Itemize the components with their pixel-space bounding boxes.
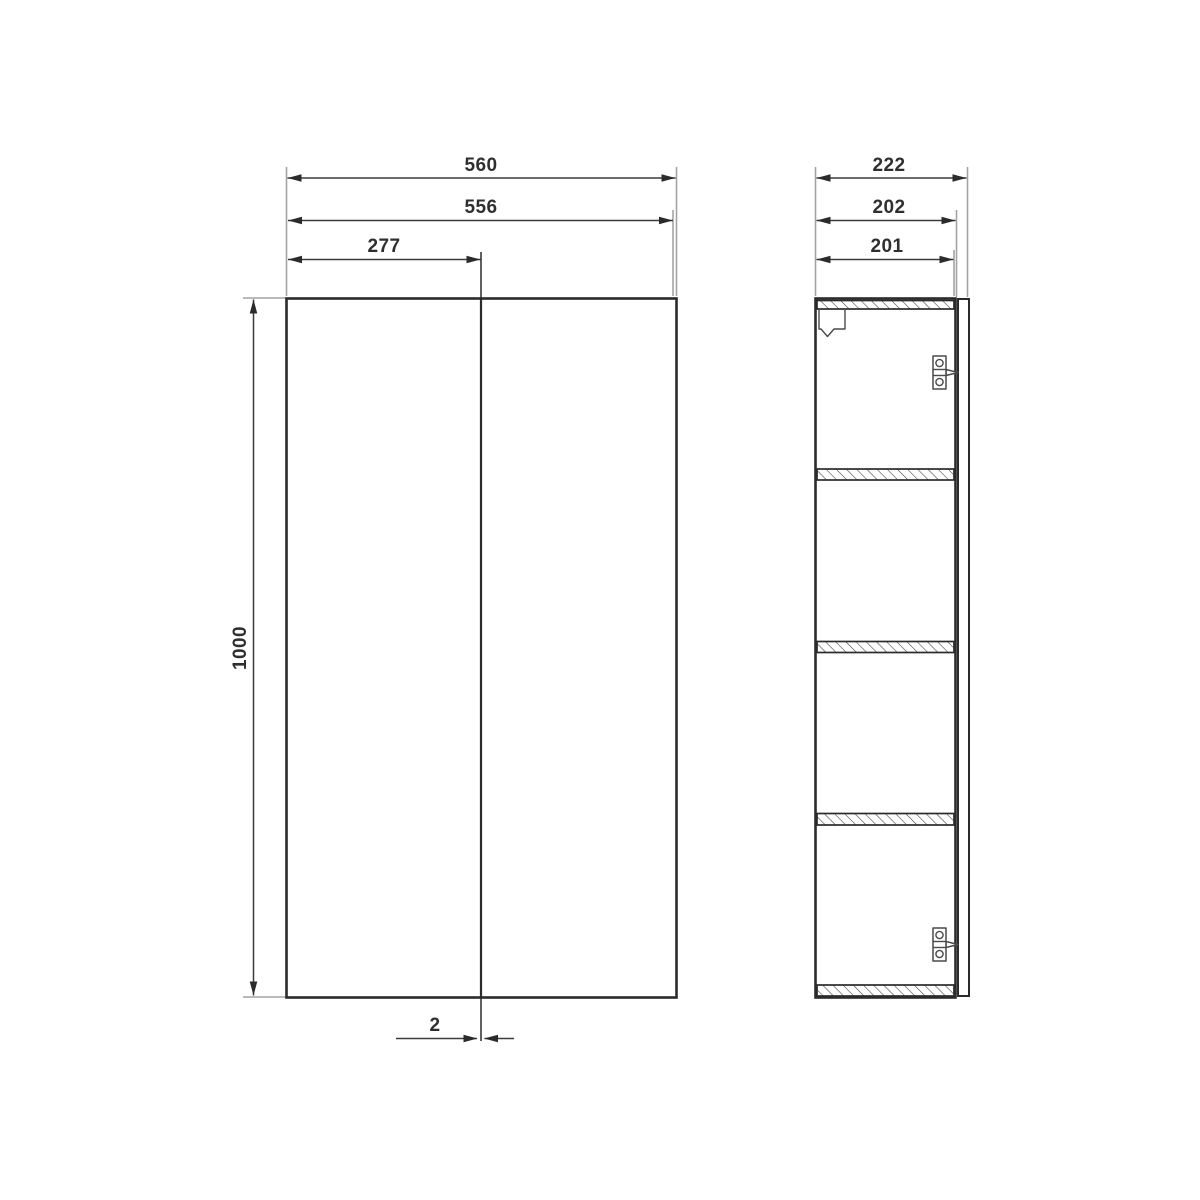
hinge-plate <box>933 928 946 961</box>
side-view: 222 202 201 <box>816 155 970 998</box>
arrowhead <box>817 174 831 182</box>
dim-front-width-label: 556 <box>465 197 498 218</box>
top-panel-section <box>817 301 954 310</box>
hinge-plate <box>933 356 946 389</box>
arrowhead <box>250 982 258 996</box>
dim-left-door-center-label: 277 <box>368 236 401 257</box>
arrowhead <box>288 174 302 182</box>
door-panel-section <box>958 299 969 996</box>
dim-door-gap-label: 2 <box>430 1015 441 1036</box>
bottom-panel-section <box>817 985 954 996</box>
dim-height: 1000 <box>230 300 257 996</box>
dim-left-door-center: 277 <box>288 236 481 263</box>
dim-inner-depth-label: 201 <box>871 236 904 257</box>
dim-front-width: 556 <box>288 197 673 224</box>
dim-height-label: 1000 <box>230 626 251 670</box>
dim-overall-width: 560 <box>288 155 676 182</box>
arrowhead <box>288 217 302 225</box>
dim-overall-depth-label: 222 <box>873 155 906 176</box>
arrowhead <box>817 217 831 225</box>
arrowhead <box>288 256 302 264</box>
dim-carcass-depth: 202 <box>817 197 956 224</box>
arrowhead <box>659 217 673 225</box>
arrowhead <box>250 300 258 314</box>
dim-door-gap: 2 <box>396 1015 514 1042</box>
dim-overall-width-label: 560 <box>465 155 498 176</box>
technical-drawing-canvas: 560 556 277 1000 2 <box>0 0 1200 1200</box>
arrowhead <box>464 1035 478 1043</box>
arrowhead <box>467 256 481 264</box>
arrowhead <box>940 256 954 264</box>
dim-carcass-depth-label: 202 <box>873 197 906 218</box>
arrowhead <box>662 174 676 182</box>
dim-overall-depth: 222 <box>817 155 967 182</box>
front-view: 560 556 277 1000 2 <box>230 155 677 1042</box>
shelf-section-2 <box>817 642 954 653</box>
arrowhead <box>484 1035 498 1043</box>
arrowhead <box>817 256 831 264</box>
arrowhead <box>953 174 967 182</box>
drawing-sheet: 560 556 277 1000 2 <box>0 0 1200 1200</box>
arrowhead <box>942 217 956 225</box>
shelf-section-1 <box>817 469 954 480</box>
shelf-section-3 <box>817 814 954 826</box>
dim-inner-depth: 201 <box>817 236 954 263</box>
